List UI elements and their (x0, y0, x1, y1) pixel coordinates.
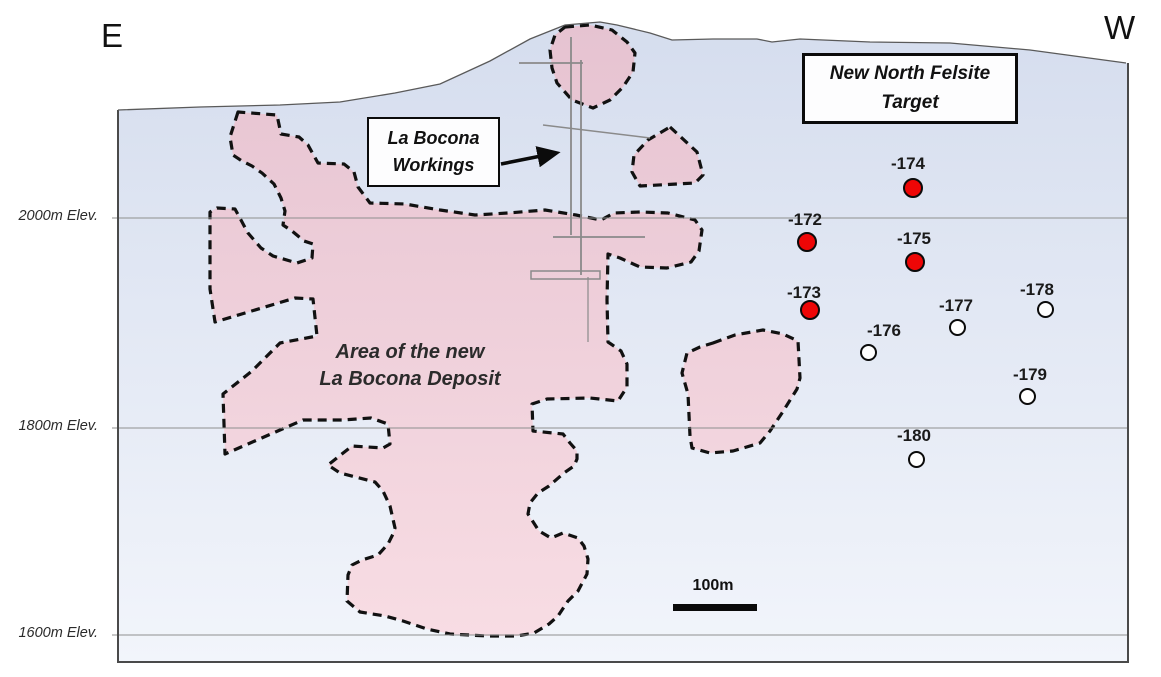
drill-hole-label-175: -175 (897, 230, 931, 247)
drill-hole-marker-173 (800, 300, 820, 320)
elevation-label: 1600m Elev. (18, 625, 98, 642)
drill-hole-label-180: -180 (897, 427, 931, 444)
drill-hole-marker-180 (908, 451, 925, 468)
felsite-target-callout-box: New North Felsite Target (802, 53, 1018, 124)
drill-hole-marker-174 (903, 178, 923, 198)
felsite-callout-line1: New North Felsite (830, 60, 990, 89)
felsite-callout-line2: Target (881, 89, 938, 118)
drill-hole-label-173: -173 (787, 284, 821, 301)
drill-hole-marker-178 (1037, 301, 1054, 318)
drill-hole-marker-179 (1019, 388, 1036, 405)
drill-hole-marker-172 (797, 232, 817, 252)
elevation-label: 2000m Elev. (18, 208, 98, 225)
drill-hole-label-172: -172 (788, 211, 822, 228)
cross-section-figure: E W 2000m Elev.1800m Elev.1600m Elev. La… (0, 0, 1161, 677)
elevation-label: 1800m Elev. (18, 418, 98, 435)
drill-hole-marker-176 (860, 344, 877, 361)
compass-east-label: E (101, 19, 123, 52)
drill-hole-label-176: -176 (867, 322, 901, 339)
drill-hole-marker-177 (949, 319, 966, 336)
deposit-area-label-line2: La Bocona Deposit (290, 366, 530, 393)
drill-hole-marker-175 (905, 252, 925, 272)
workings-callout-line2: Workings (393, 152, 475, 179)
drill-hole-label-179: -179 (1013, 366, 1047, 383)
deposit-area-label: Area of the new La Bocona Deposit (290, 339, 530, 393)
deposit-area-label-line1: Area of the new (290, 339, 530, 366)
drill-hole-label-177: -177 (939, 297, 973, 314)
compass-west-label: W (1104, 11, 1135, 44)
workings-callout-box: La Bocona Workings (367, 117, 500, 187)
drill-hole-label-174: -174 (891, 155, 925, 172)
scale-bar (673, 604, 757, 611)
workings-callout-line1: La Bocona (387, 125, 479, 152)
scale-bar-label: 100m (693, 577, 734, 595)
drill-hole-label-178: -178 (1020, 281, 1054, 298)
